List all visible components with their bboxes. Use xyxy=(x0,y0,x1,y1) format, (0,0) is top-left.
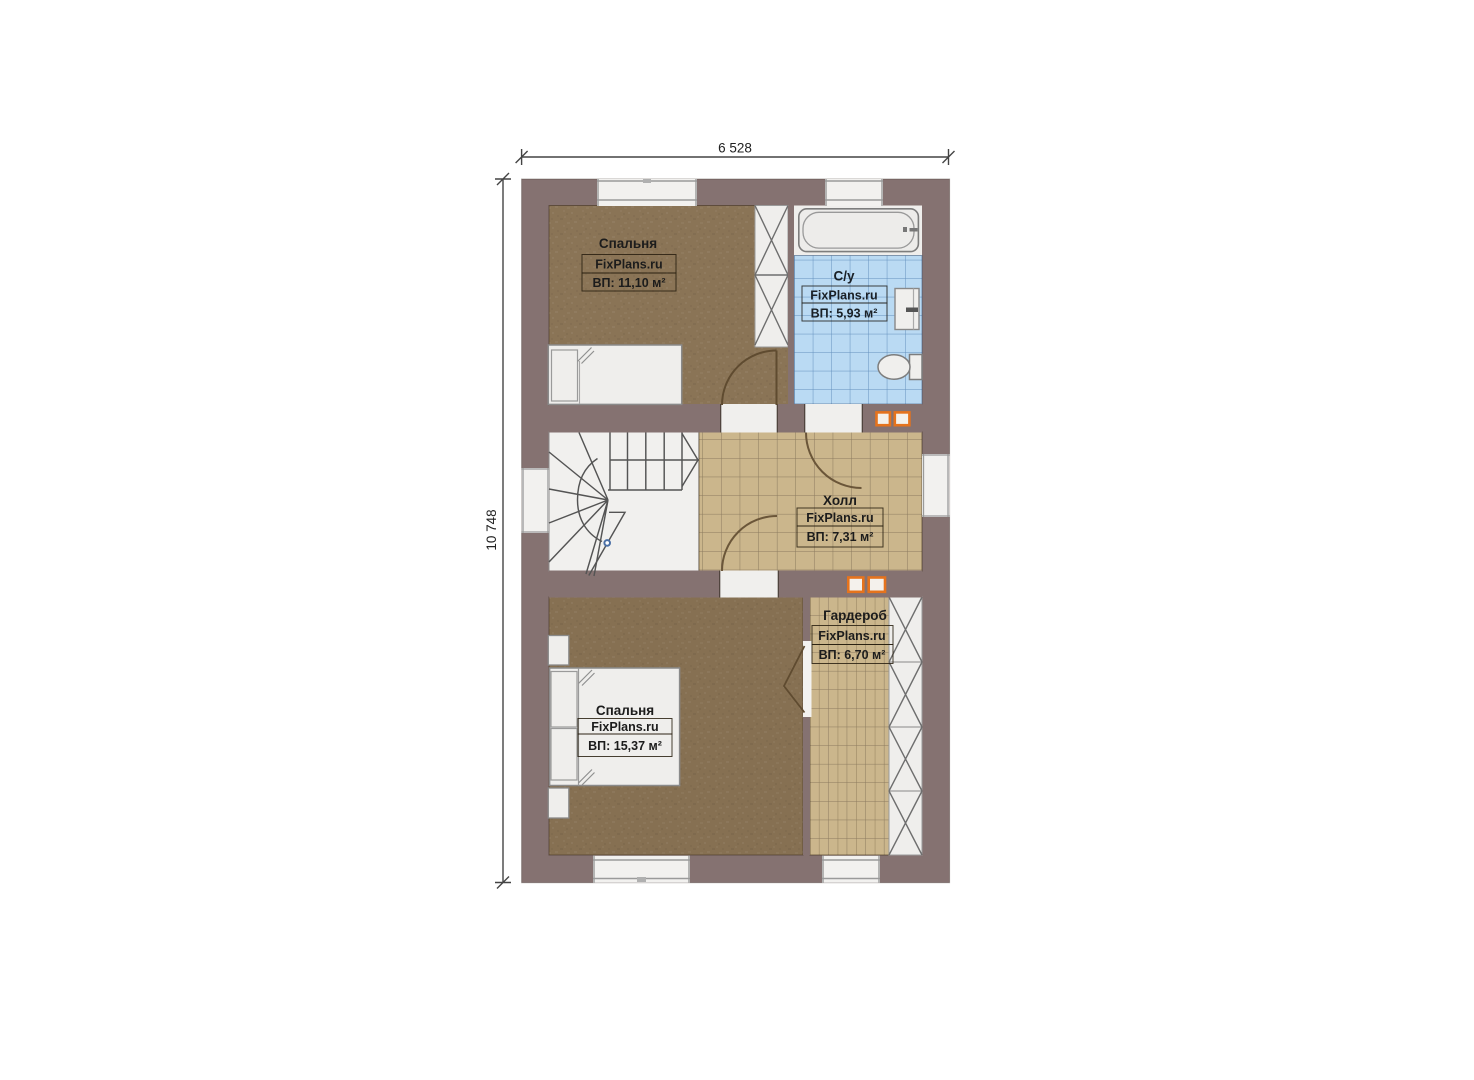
svg-text:С/у: С/у xyxy=(833,269,855,284)
svg-text:6 528: 6 528 xyxy=(718,141,752,156)
svg-text:ВП: 7,31 м²: ВП: 7,31 м² xyxy=(807,530,874,544)
svg-text:FixPlans.ru: FixPlans.ru xyxy=(595,258,662,272)
svg-text:ВП: 11,10 м²: ВП: 11,10 м² xyxy=(592,276,665,290)
svg-text:Спальня: Спальня xyxy=(599,236,657,251)
svg-text:ВП: 6,70 м²: ВП: 6,70 м² xyxy=(819,648,886,662)
svg-text:ВП: 15,37 м²: ВП: 15,37 м² xyxy=(588,739,662,753)
svg-text:FixPlans.ru: FixPlans.ru xyxy=(818,629,885,643)
svg-text:Холл: Холл xyxy=(823,493,857,508)
svg-text:ВП: 5,93 м²: ВП: 5,93 м² xyxy=(811,307,878,321)
svg-text:FixPlans.ru: FixPlans.ru xyxy=(591,720,658,734)
svg-text:Гардероб: Гардероб xyxy=(823,608,887,623)
svg-text:10 748: 10 748 xyxy=(484,509,499,550)
svg-text:FixPlans.ru: FixPlans.ru xyxy=(806,511,873,525)
svg-text:FixPlans.ru: FixPlans.ru xyxy=(810,289,877,303)
svg-text:Спальня: Спальня xyxy=(596,703,654,718)
